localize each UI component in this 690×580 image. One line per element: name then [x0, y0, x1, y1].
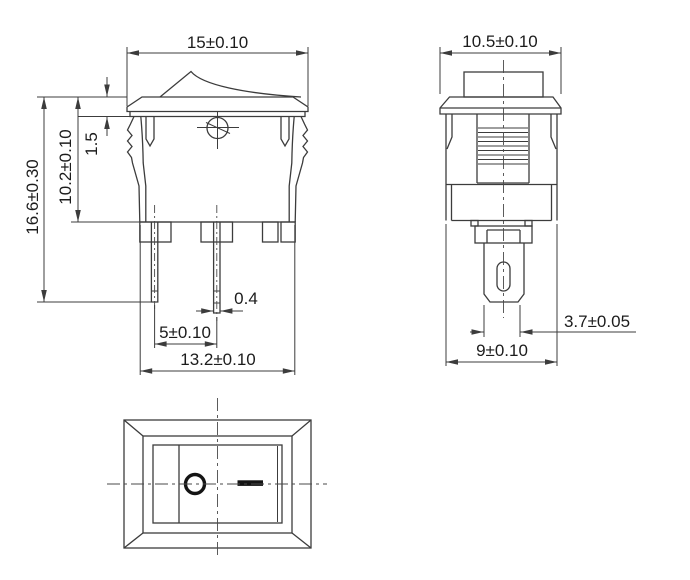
- rocker-button-outline: [160, 72, 301, 98]
- dim-label-body-depth: 9±0.10: [476, 341, 528, 360]
- dim-front-body-width: 13.2±0.10: [140, 225, 295, 375]
- side-terminal-post: [484, 243, 524, 302]
- rib-lines: [478, 128, 528, 164]
- bottom-view: [107, 398, 327, 559]
- snap-hook-left: [146, 117, 154, 147]
- dim-front-terminal-thickness: 0.4: [196, 289, 258, 311]
- dim-front-flange-thickness: 1.5: [78, 77, 130, 156]
- dim-side-terminal-post-width: 3.7±0.05: [470, 305, 636, 337]
- ribbed-latch-window: [477, 114, 529, 183]
- dim-label-overall-height: 16.6±0.30: [23, 159, 42, 235]
- dim-front-body-height: 10.2±0.10: [56, 97, 140, 222]
- snap-hook-right: [281, 117, 289, 147]
- dim-label-terminal-thickness: 0.4: [234, 289, 258, 308]
- terminal-pin-left: [151, 205, 157, 309]
- dim-label-terminal-spacing: 5±0.10: [159, 323, 211, 342]
- dim-front-overall-height: 16.6±0.30: [23, 97, 151, 302]
- terminal-blocks: [140, 222, 295, 242]
- dim-side-body-depth: 9±0.10: [446, 224, 557, 366]
- on-symbol-icon: [238, 480, 264, 486]
- side-mounting-flange: [440, 97, 561, 114]
- dim-label-flange-width: 15±0.10: [187, 33, 248, 52]
- dim-label-terminal-post-width: 3.7±0.05: [564, 312, 630, 331]
- rocker-switch-technical-drawing: 15±0.10 16.6±0.30 10.2±0.10 1.5 0.4: [0, 0, 690, 580]
- side-terminal-housing: [471, 221, 532, 303]
- side-snap-hook-left: [447, 114, 452, 149]
- dim-label-body-height: 10.2±0.10: [56, 129, 75, 205]
- side-snap-hook-right: [551, 114, 556, 149]
- pivot-screw: [197, 112, 239, 149]
- side-body-outline: [446, 114, 557, 221]
- dim-label-body-width: 13.2±0.10: [180, 350, 256, 369]
- drawing-canvas: 15±0.10 16.6±0.30 10.2±0.10 1.5 0.4: [0, 0, 690, 580]
- front-view: 15±0.10 16.6±0.30 10.2±0.10 1.5 0.4: [23, 33, 308, 375]
- side-view: 10.5±0.10 3.7±0.05 9±0.10: [440, 32, 636, 366]
- dim-label-flange-thickness: 1.5: [82, 132, 101, 156]
- dim-label-flange-depth: 10.5±0.10: [462, 32, 538, 51]
